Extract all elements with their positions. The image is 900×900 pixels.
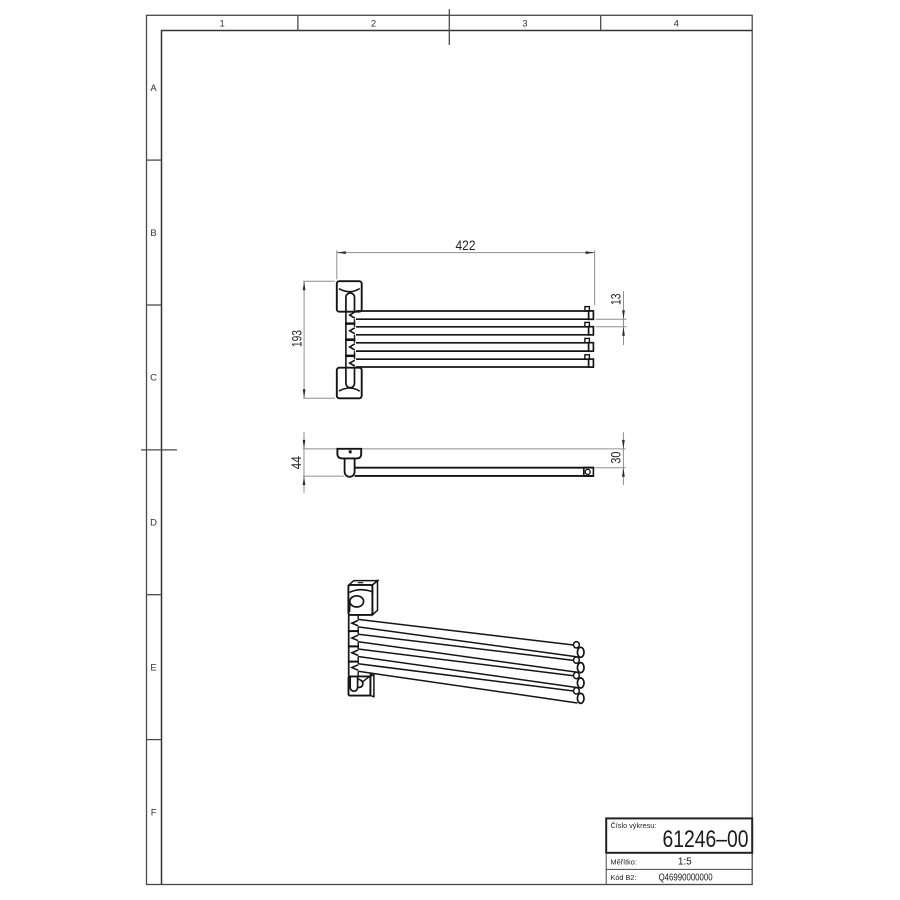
svg-text:B: B xyxy=(150,228,156,239)
svg-text:F: F xyxy=(151,807,157,818)
svg-text:13: 13 xyxy=(608,293,624,305)
svg-text:Měřítko:: Měřítko: xyxy=(611,857,637,866)
svg-text:422: 422 xyxy=(456,237,476,253)
svg-text:Q46990000000: Q46990000000 xyxy=(659,872,713,883)
svg-text:30: 30 xyxy=(608,451,624,463)
svg-text:Číslo výkresu:: Číslo výkresu: xyxy=(611,821,657,830)
svg-text:A: A xyxy=(150,83,157,94)
svg-text:2: 2 xyxy=(371,19,376,30)
svg-text:3: 3 xyxy=(522,19,527,30)
svg-text:D: D xyxy=(150,518,157,529)
svg-text:44: 44 xyxy=(288,456,304,470)
svg-text:C: C xyxy=(150,373,157,384)
svg-text:1:5: 1:5 xyxy=(678,857,692,868)
svg-text:61246–00: 61246–00 xyxy=(663,826,749,853)
svg-text:E: E xyxy=(150,662,156,673)
svg-text:Kód B2:: Kód B2: xyxy=(611,873,637,882)
svg-text:4: 4 xyxy=(674,19,679,30)
svg-text:1: 1 xyxy=(219,19,224,30)
svg-text:193: 193 xyxy=(289,330,305,347)
